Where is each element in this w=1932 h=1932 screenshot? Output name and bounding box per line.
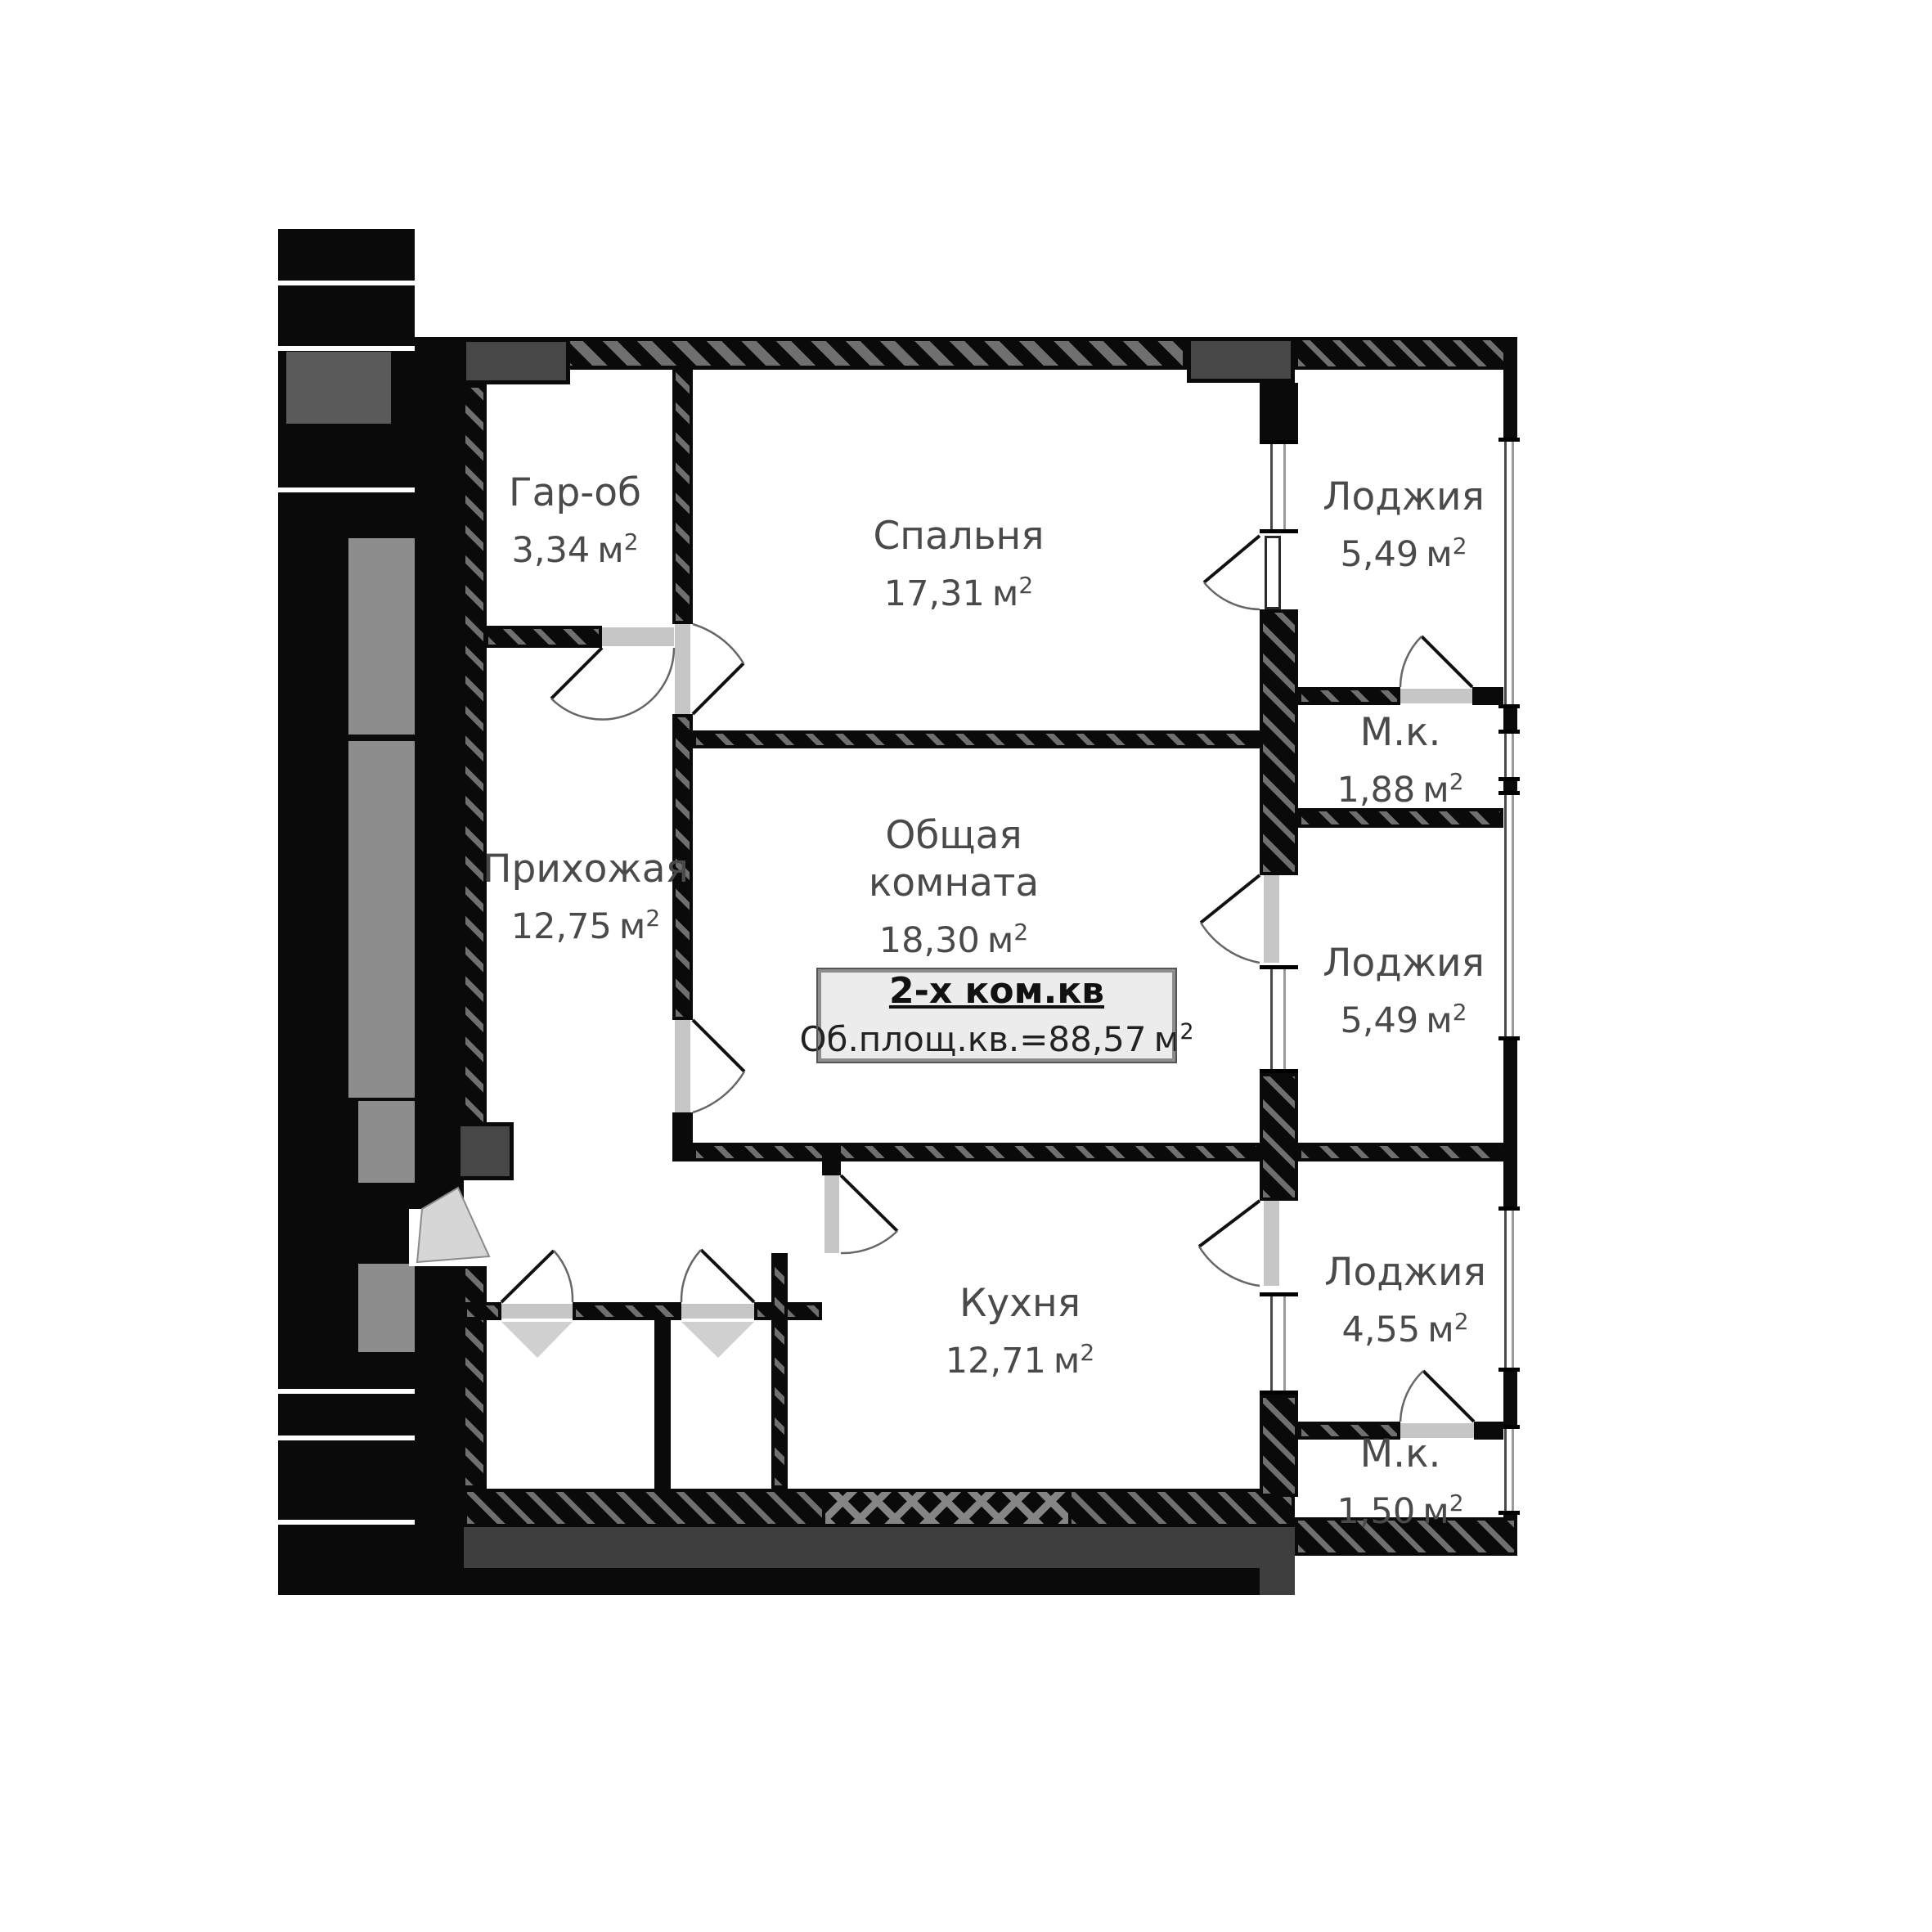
room-label-garob: Гар-об 3,34м2 <box>477 470 673 573</box>
entrance-door-leaf <box>417 1188 489 1262</box>
room-label-mk-bottom: М.к. 1,50м2 <box>1286 1431 1515 1534</box>
room-label-kitchen: Кухня 12,71м2 <box>889 1280 1151 1383</box>
room-label-hallway: Прихожая 12,75м2 <box>455 846 717 949</box>
apartment-total-area: Об.площ.кв.=88,57м2 <box>800 1012 1194 1060</box>
room-label-loggia-middle: Лоджия 5,49м2 <box>1289 940 1518 1043</box>
room-label-living: Общая комната 18,30м2 <box>819 812 1089 963</box>
door-wedge <box>681 1322 754 1358</box>
floor-plan: Гар-об 3,34м2 Спальня 17,31м2 Лоджия 5,4… <box>0 0 1932 1932</box>
door-swing-overlay <box>0 0 1932 1932</box>
room-label-loggia-top: Лоджия 5,49м2 <box>1289 474 1518 577</box>
room-label-mk-top: М.к. 1,88м2 <box>1294 709 1507 812</box>
door-wedge <box>501 1322 573 1358</box>
room-label-loggia-bottom: Лоджия 4,55м2 <box>1291 1249 1520 1352</box>
apartment-type-title: 2-х ком.кв <box>889 971 1104 1012</box>
apartment-info-box: 2-х ком.кв Об.площ.кв.=88,57м2 <box>818 969 1175 1062</box>
room-label-bedroom: Спальня 17,31м2 <box>787 513 1130 616</box>
